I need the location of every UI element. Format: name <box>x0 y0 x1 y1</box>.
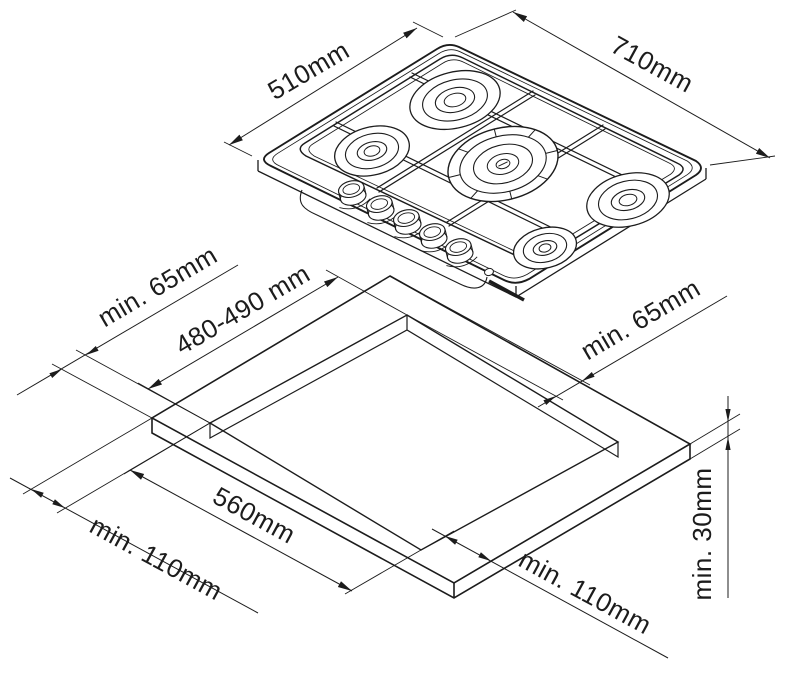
dim-label-hob-width: 710mm <box>606 30 699 99</box>
front-apron-bar <box>489 281 524 300</box>
dim-label-clearance-front-right: min. 110mm <box>514 544 657 640</box>
installation-diagram-page: 510mm 710mm 480-490 mm min. 65mm <box>0 0 790 694</box>
dim-label-worktop-thickness: min. 30mm <box>687 467 717 600</box>
dim-label-clearance-front-left: min. 110mm <box>85 510 228 606</box>
dimension-line <box>432 529 668 658</box>
dimension-worktop-thickness: min. 30mm <box>687 396 740 601</box>
installation-diagram: 510mm 710mm 480-490 mm min. 65mm <box>0 0 790 694</box>
hob-drawing: 510mm 710mm <box>224 10 775 300</box>
dim-label-clearance-rear-right: min. 65mm <box>575 273 705 366</box>
extension-lines <box>690 414 740 459</box>
worktop-cutout-drawing: 480-490 mm min. 65mm min. 65mm 560mm <box>10 240 740 658</box>
